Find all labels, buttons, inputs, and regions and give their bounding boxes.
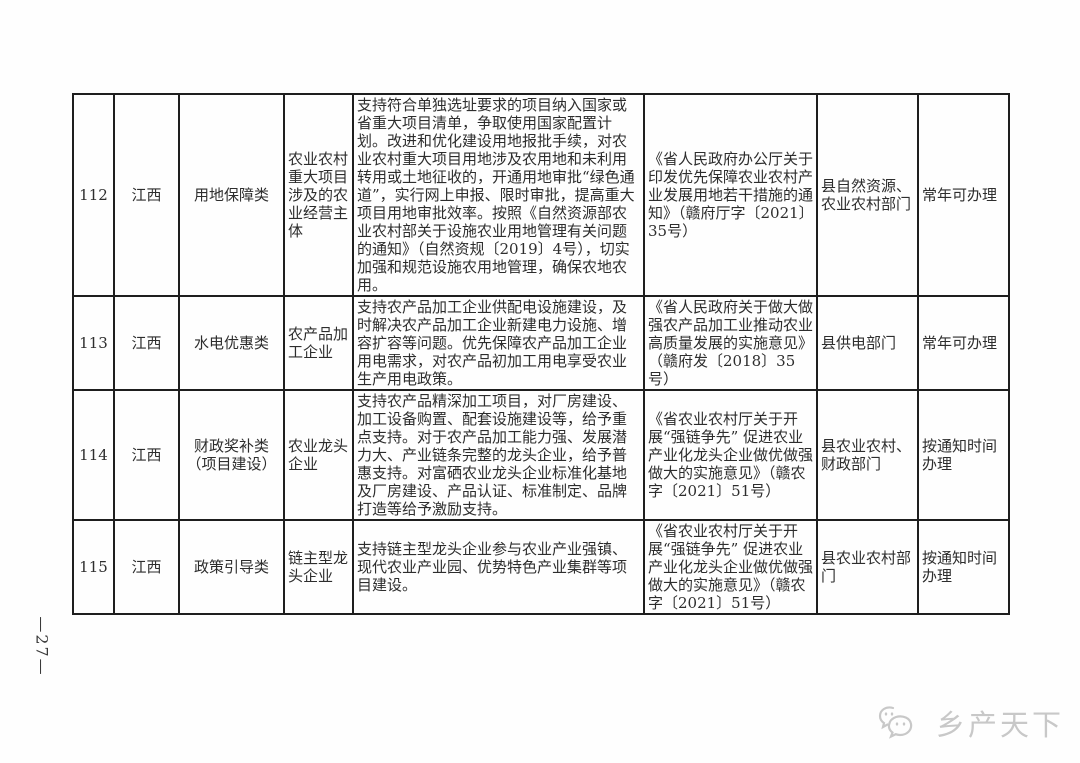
cell-province: 江西: [114, 296, 179, 390]
cell-department: 县供电部门: [817, 296, 918, 390]
table-row: 115 江西 政策引导类 链主型龙头企业 支持链主型龙头企业参与农业产业强镇、现…: [73, 520, 1009, 614]
policy-table: 112 江西 用地保障类 农业农村重大项目涉及的农业经营主体 支持符合单独选址要…: [72, 93, 1010, 615]
cell-province: 江西: [114, 520, 179, 614]
cell-department: 县自然资源、农业农村部门: [817, 94, 918, 296]
cell-policy-basis: 《省农业农村厅关于开展“强链争先” 促进农业产业化龙头企业做优做强做大的实施意见…: [644, 390, 817, 520]
cell-policy-basis: 《省人民政府关于做大做强农产品加工业推动农业高质量发展的实施意见》（赣府发〔20…: [644, 296, 817, 390]
cell-timing: 常年可办理: [918, 94, 1009, 296]
cell-content: 支持农产品加工企业供配电设施建设，及时解决农产品加工企业新建电力设施、增容扩容等…: [353, 296, 644, 390]
cell-content: 支持农产品精深加工项目，对厂房建设、加工设备购置、配套设施建设等，给予重点支持。…: [353, 390, 644, 520]
cell-policy-basis: 《省人民政府办公厅关于印发优先保障农业农村产业发展用地若干措施的通知》（赣府厅字…: [644, 94, 817, 296]
document-page: 112 江西 用地保障类 农业农村重大项目涉及的农业经营主体 支持符合单独选址要…: [0, 0, 1080, 763]
cell-category: 用地保障类: [179, 94, 284, 296]
cell-row-number: 113: [73, 296, 114, 390]
cell-timing: 按通知时间办理: [918, 390, 1009, 520]
page-number-label: —27—: [33, 616, 52, 676]
cell-target: 农产品加工企业: [284, 296, 353, 390]
cell-target: 农业龙头企业: [284, 390, 353, 520]
cell-timing: 按通知时间办理: [918, 520, 1009, 614]
cell-category: 水电优惠类: [179, 296, 284, 390]
cell-target: 链主型龙头企业: [284, 520, 353, 614]
cell-province: 江西: [114, 390, 179, 520]
cell-policy-basis: 《省农业农村厅关于开展“强链争先” 促进农业产业化龙头企业做优做强做大的实施意见…: [644, 520, 817, 614]
cell-department: 县农业农村、财政部门: [817, 390, 918, 520]
cell-row-number: 114: [73, 390, 114, 520]
chat-bubbles-icon: [876, 703, 928, 743]
table-row: 114 江西 财政奖补类（项目建设） 农业龙头企业 支持农产品精深加工项目，对厂…: [73, 390, 1009, 520]
watermark: 乡产天下: [876, 702, 1064, 744]
cell-row-number: 115: [73, 520, 114, 614]
cell-target: 农业农村重大项目涉及的农业经营主体: [284, 94, 353, 296]
cell-province: 江西: [114, 94, 179, 296]
cell-row-number: 112: [73, 94, 114, 296]
cell-category: 政策引导类: [179, 520, 284, 614]
table-row: 113 江西 水电优惠类 农产品加工企业 支持农产品加工企业供配电设施建设，及时…: [73, 296, 1009, 390]
cell-category: 财政奖补类（项目建设）: [179, 390, 284, 520]
cell-timing: 常年可办理: [918, 296, 1009, 390]
table-row: 112 江西 用地保障类 农业农村重大项目涉及的农业经营主体 支持符合单独选址要…: [73, 94, 1009, 296]
page-number: —27—: [12, 608, 72, 684]
cell-department: 县农业农村部门: [817, 520, 918, 614]
watermark-text: 乡产天下: [936, 702, 1064, 744]
cell-content: 支持符合单独选址要求的项目纳入国家或省重大项目清单，争取使用国家配置计划。改进和…: [353, 94, 644, 296]
cell-content: 支持链主型龙头企业参与农业产业强镇、现代农业产业园、优势特色产业集群等项目建设。: [353, 520, 644, 614]
